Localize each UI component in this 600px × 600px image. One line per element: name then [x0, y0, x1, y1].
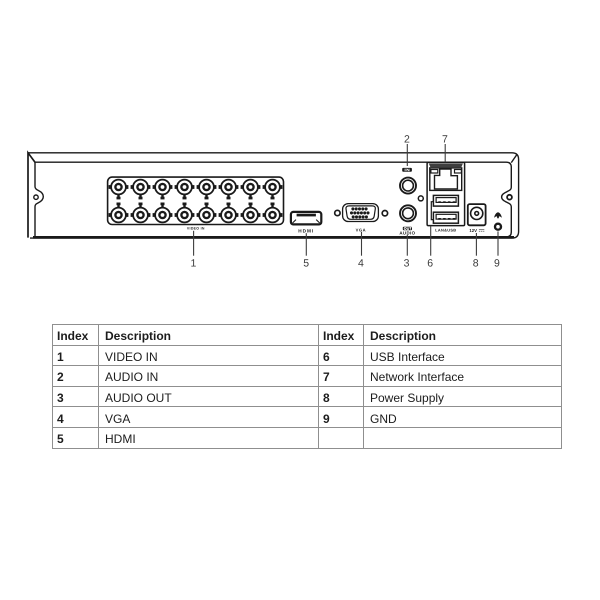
svg-text:8: 8: [473, 258, 479, 270]
svg-text:7: 7: [442, 133, 448, 145]
svg-text:HDMI: HDMI: [298, 228, 314, 233]
svg-text:9: 9: [494, 258, 500, 270]
svg-text:AUDIO: AUDIO: [399, 230, 415, 235]
svg-text:VIDEO IN: VIDEO IN: [187, 226, 205, 230]
svg-text:3: 3: [404, 258, 410, 270]
svg-text:1: 1: [190, 258, 196, 270]
svg-text:2: 2: [404, 133, 410, 145]
svg-text:5: 5: [303, 258, 309, 270]
svg-text:4: 4: [358, 258, 364, 270]
svg-text:12V: 12V: [469, 228, 477, 233]
svg-text:6: 6: [427, 258, 433, 270]
svg-text:VGA: VGA: [356, 227, 367, 232]
svg-text:LAN&USB: LAN&USB: [435, 228, 456, 233]
